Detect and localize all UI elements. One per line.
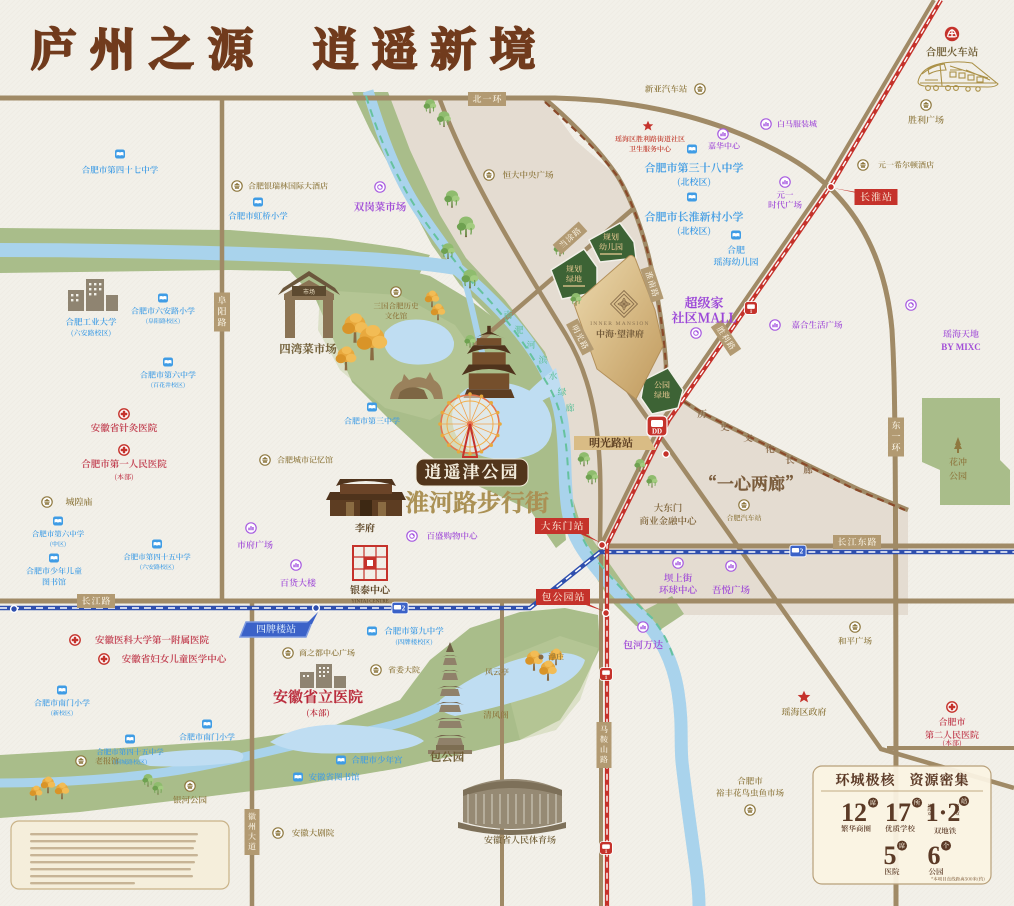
svg-text:BY MIXC: BY MIXC	[941, 342, 980, 352]
svg-text:12: 12	[841, 798, 867, 827]
svg-text:6: 6	[928, 841, 941, 870]
svg-text:17: 17	[885, 798, 911, 827]
svg-text:INNER MANSION: INNER MANSION	[590, 321, 649, 327]
svg-text:市场: 市场	[303, 288, 315, 296]
svg-text:YINTAI CENTRE: YINTAI CENTRE	[351, 600, 389, 605]
svg-text:5: 5	[884, 841, 897, 870]
svg-text:DD: DD	[652, 428, 662, 436]
